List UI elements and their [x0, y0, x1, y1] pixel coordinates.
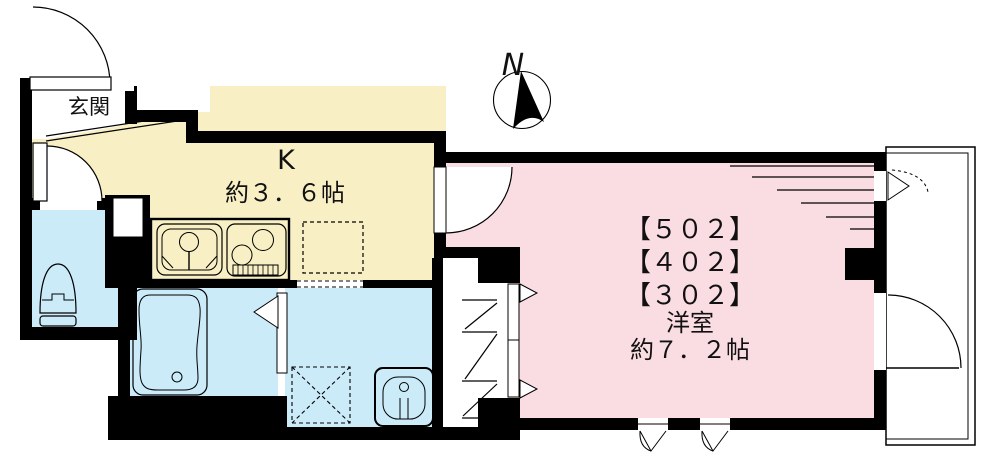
- pipe-shaft-pillar: [845, 248, 874, 280]
- kitchen-size-label: 約３．６帖: [225, 179, 345, 207]
- washroom-floor: [285, 288, 432, 427]
- unit-number-402: 【４０２】: [625, 248, 755, 278]
- outside-notch: [137, 68, 210, 112]
- floor-plan: N 玄関 K 約３．６帖 【５０２】 【４０２】 【３０２】 洋室 約７．２帖: [0, 0, 984, 456]
- bathroom-floor: [130, 288, 278, 398]
- bath-area-door-nook: [113, 198, 143, 237]
- western-room-size-label: 約７．２帖: [630, 336, 750, 364]
- compass-north-label: N: [502, 48, 524, 83]
- unit-number-502: 【５０２】: [625, 215, 755, 245]
- unit-number-302: 【３０２】: [625, 281, 755, 311]
- kitchen-label: K: [277, 145, 296, 176]
- western-room-labels: 【５０２】 【４０２】 【３０２】 洋室 約７．２帖: [625, 215, 755, 364]
- entrance-label: 玄関: [68, 95, 110, 119]
- western-room-label: 洋室: [666, 309, 714, 337]
- floor-plan-canvas: N 玄関 K 約３．６帖 【５０２】 【４０２】 【３０２】 洋室 約７．２帖: [0, 0, 984, 456]
- washroom-opening: [297, 280, 363, 288]
